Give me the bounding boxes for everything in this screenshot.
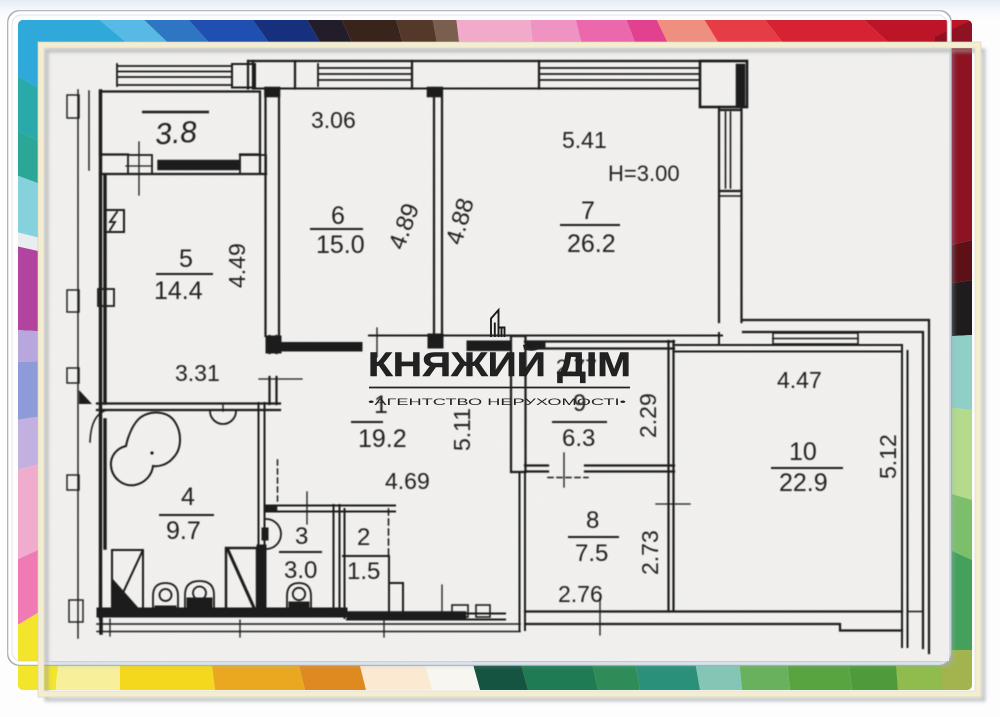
svg-text:7: 7 (581, 197, 595, 225)
svg-text:3.8: 3.8 (154, 116, 198, 152)
svg-text:3.06: 3.06 (311, 107, 356, 133)
svg-text:2.76: 2.76 (558, 581, 603, 607)
svg-text:15.0: 15.0 (316, 231, 365, 259)
svg-text:26.2: 26.2 (567, 230, 616, 258)
svg-text:КНЯЖИЙ ДІМ: КНЯЖИЙ ДІМ (368, 345, 631, 384)
svg-text:5.12: 5.12 (875, 434, 901, 479)
svg-text:9.7: 9.7 (166, 517, 201, 545)
svg-text:22.9: 22.9 (779, 469, 828, 497)
svg-text:3.0: 3.0 (284, 557, 317, 584)
svg-text:4: 4 (181, 483, 195, 511)
svg-text:2: 2 (357, 524, 370, 551)
svg-text:5: 5 (179, 245, 193, 273)
svg-text:10: 10 (789, 438, 817, 466)
svg-text:2.73: 2.73 (637, 530, 663, 575)
svg-text:5.11: 5.11 (449, 408, 475, 451)
svg-text:3.31: 3.31 (175, 360, 220, 386)
svg-text:3: 3 (295, 523, 308, 550)
svg-text:19.2: 19.2 (358, 425, 407, 453)
svg-text:4.49: 4.49 (224, 243, 250, 288)
svg-text:5.41: 5.41 (562, 127, 607, 153)
svg-text:4.69: 4.69 (385, 468, 430, 494)
svg-text:•АГЕНТСТВО НЕРУХОМОСТІ•: •АГЕНТСТВО НЕРУХОМОСТІ• (368, 397, 626, 408)
svg-text:2.29: 2.29 (635, 393, 661, 438)
svg-text:6: 6 (331, 202, 345, 230)
svg-text:6.3: 6.3 (562, 425, 595, 452)
svg-text:4.47: 4.47 (777, 367, 822, 393)
svg-text:7.5: 7.5 (575, 540, 608, 567)
svg-text:1.5: 1.5 (347, 558, 380, 585)
svg-text:H=3.00: H=3.00 (608, 161, 680, 186)
svg-text:8: 8 (586, 507, 599, 534)
svg-text:14.4: 14.4 (154, 277, 203, 305)
